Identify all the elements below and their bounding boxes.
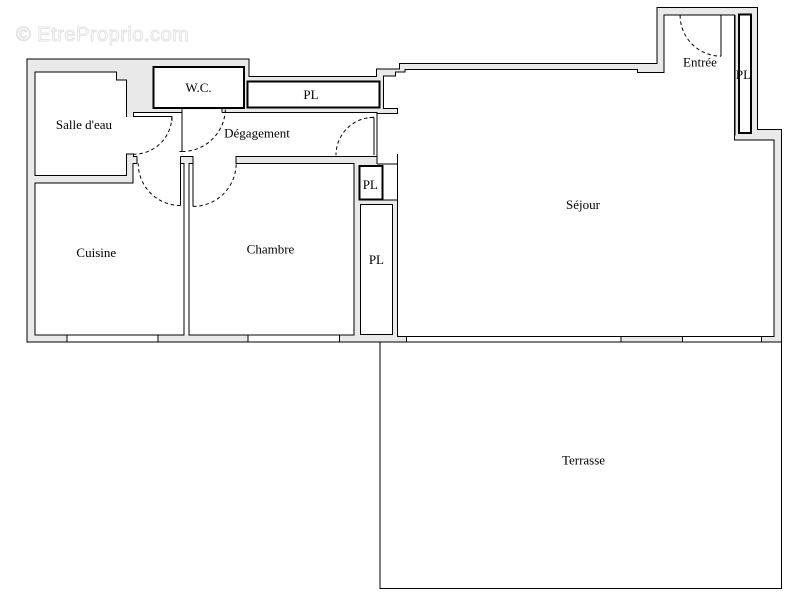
svg-text:Séjour: Séjour (566, 197, 601, 212)
svg-text:Chambre: Chambre (247, 242, 295, 257)
svg-text:W.C.: W.C. (185, 80, 211, 95)
svg-text:© EtreProprio.com: © EtreProprio.com (16, 24, 189, 46)
svg-text:Entrée: Entrée (683, 54, 717, 69)
svg-text:PL: PL (369, 252, 384, 267)
svg-text:Salle d'eau: Salle d'eau (56, 117, 113, 132)
svg-text:PL: PL (363, 177, 378, 192)
svg-text:Cuisine: Cuisine (76, 245, 116, 260)
svg-text:PL: PL (736, 67, 751, 82)
svg-text:Terrasse: Terrasse (562, 453, 605, 468)
svg-text:Dégagement: Dégagement (224, 126, 290, 141)
svg-text:PL: PL (303, 87, 318, 102)
